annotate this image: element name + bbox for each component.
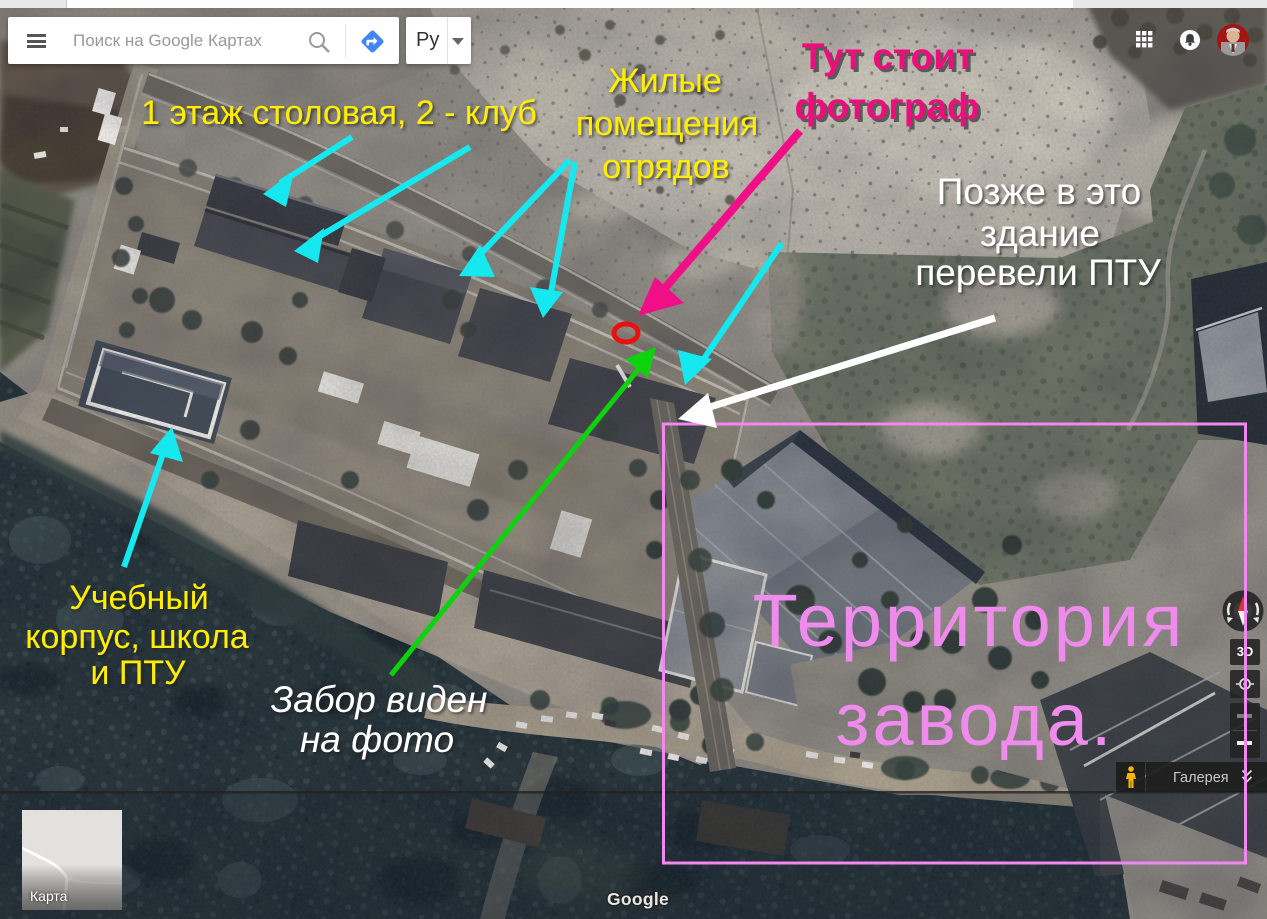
svg-text:помещения: помещения: [576, 105, 758, 143]
svg-text:1 этаж столовая, 2 - клуб: 1 этаж столовая, 2 - клуб: [141, 94, 537, 132]
svg-text:Забор виден: Забор виден: [271, 679, 488, 720]
svg-text:на фото: на фото: [300, 719, 454, 760]
svg-text:Территория: Территория: [753, 579, 1186, 662]
svg-text:завода.: завода.: [836, 678, 1115, 761]
svg-text:Позже в это: Позже в это: [937, 171, 1141, 212]
svg-text:Учебный: Учебный: [69, 579, 209, 617]
svg-text:и ПТУ: и ПТУ: [90, 654, 186, 692]
svg-text:Тут стоит: Тут стоит: [802, 36, 974, 77]
svg-text:перевели ПТУ: перевели ПТУ: [915, 252, 1161, 293]
svg-text:отрядов: отрядов: [602, 148, 729, 186]
svg-text:здание: здание: [980, 213, 1100, 254]
svg-text:корпус, школа: корпус, школа: [25, 618, 249, 656]
svg-text:Жилые: Жилые: [608, 62, 722, 100]
svg-text:Google: Google: [607, 889, 669, 909]
svg-text:фотограф: фотограф: [795, 86, 980, 127]
